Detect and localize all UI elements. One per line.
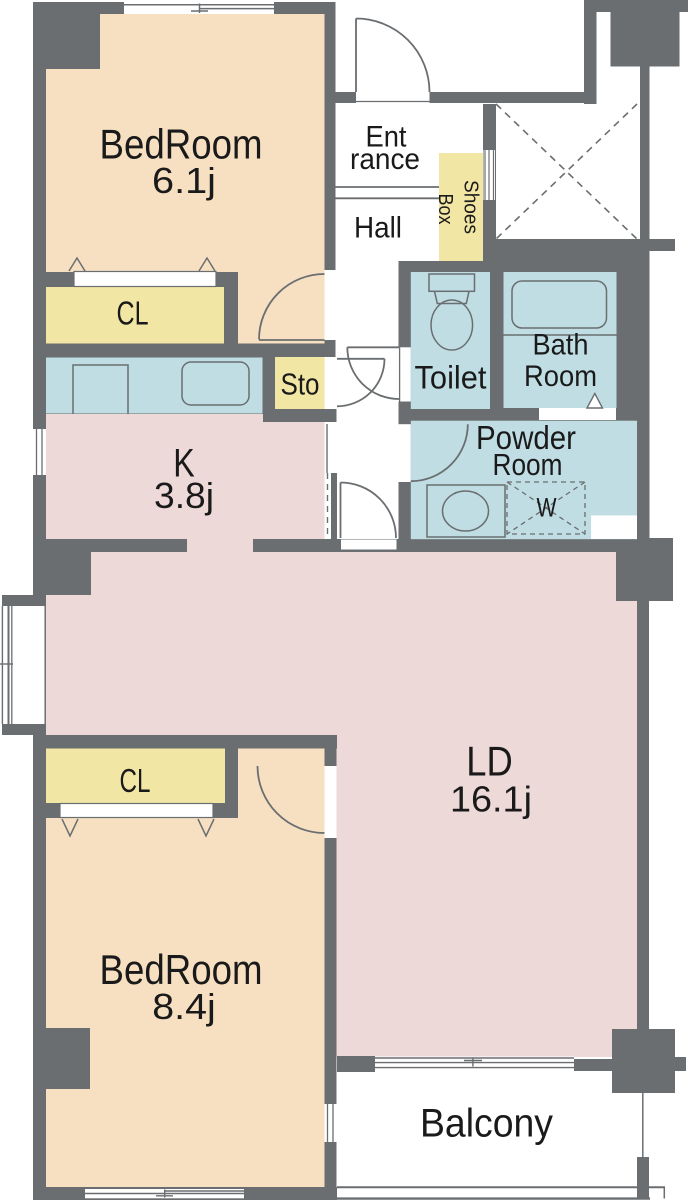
svg-text:Room: Room	[524, 360, 597, 393]
svg-text:LD: LD	[466, 738, 513, 785]
svg-text:CL: CL	[120, 762, 151, 799]
svg-text:rance: rance	[350, 143, 420, 176]
svg-text:Room: Room	[493, 447, 563, 482]
svg-text:Box: Box	[434, 194, 456, 225]
svg-text:6.1j: 6.1j	[152, 160, 216, 201]
svg-text:Shoes: Shoes	[460, 180, 482, 234]
svg-text:16.1j: 16.1j	[450, 779, 532, 820]
svg-text:3.8j: 3.8j	[154, 475, 214, 516]
svg-text:CL: CL	[117, 295, 149, 332]
svg-text:Balcony: Balcony	[420, 1102, 553, 1146]
svg-text:Toilet: Toilet	[415, 360, 487, 396]
svg-text:8.4j: 8.4j	[152, 986, 216, 1027]
svg-text:Hall: Hall	[354, 212, 402, 245]
svg-text:Bath: Bath	[533, 329, 589, 362]
svg-text:Sto: Sto	[281, 367, 320, 402]
svg-text:W: W	[537, 493, 557, 523]
